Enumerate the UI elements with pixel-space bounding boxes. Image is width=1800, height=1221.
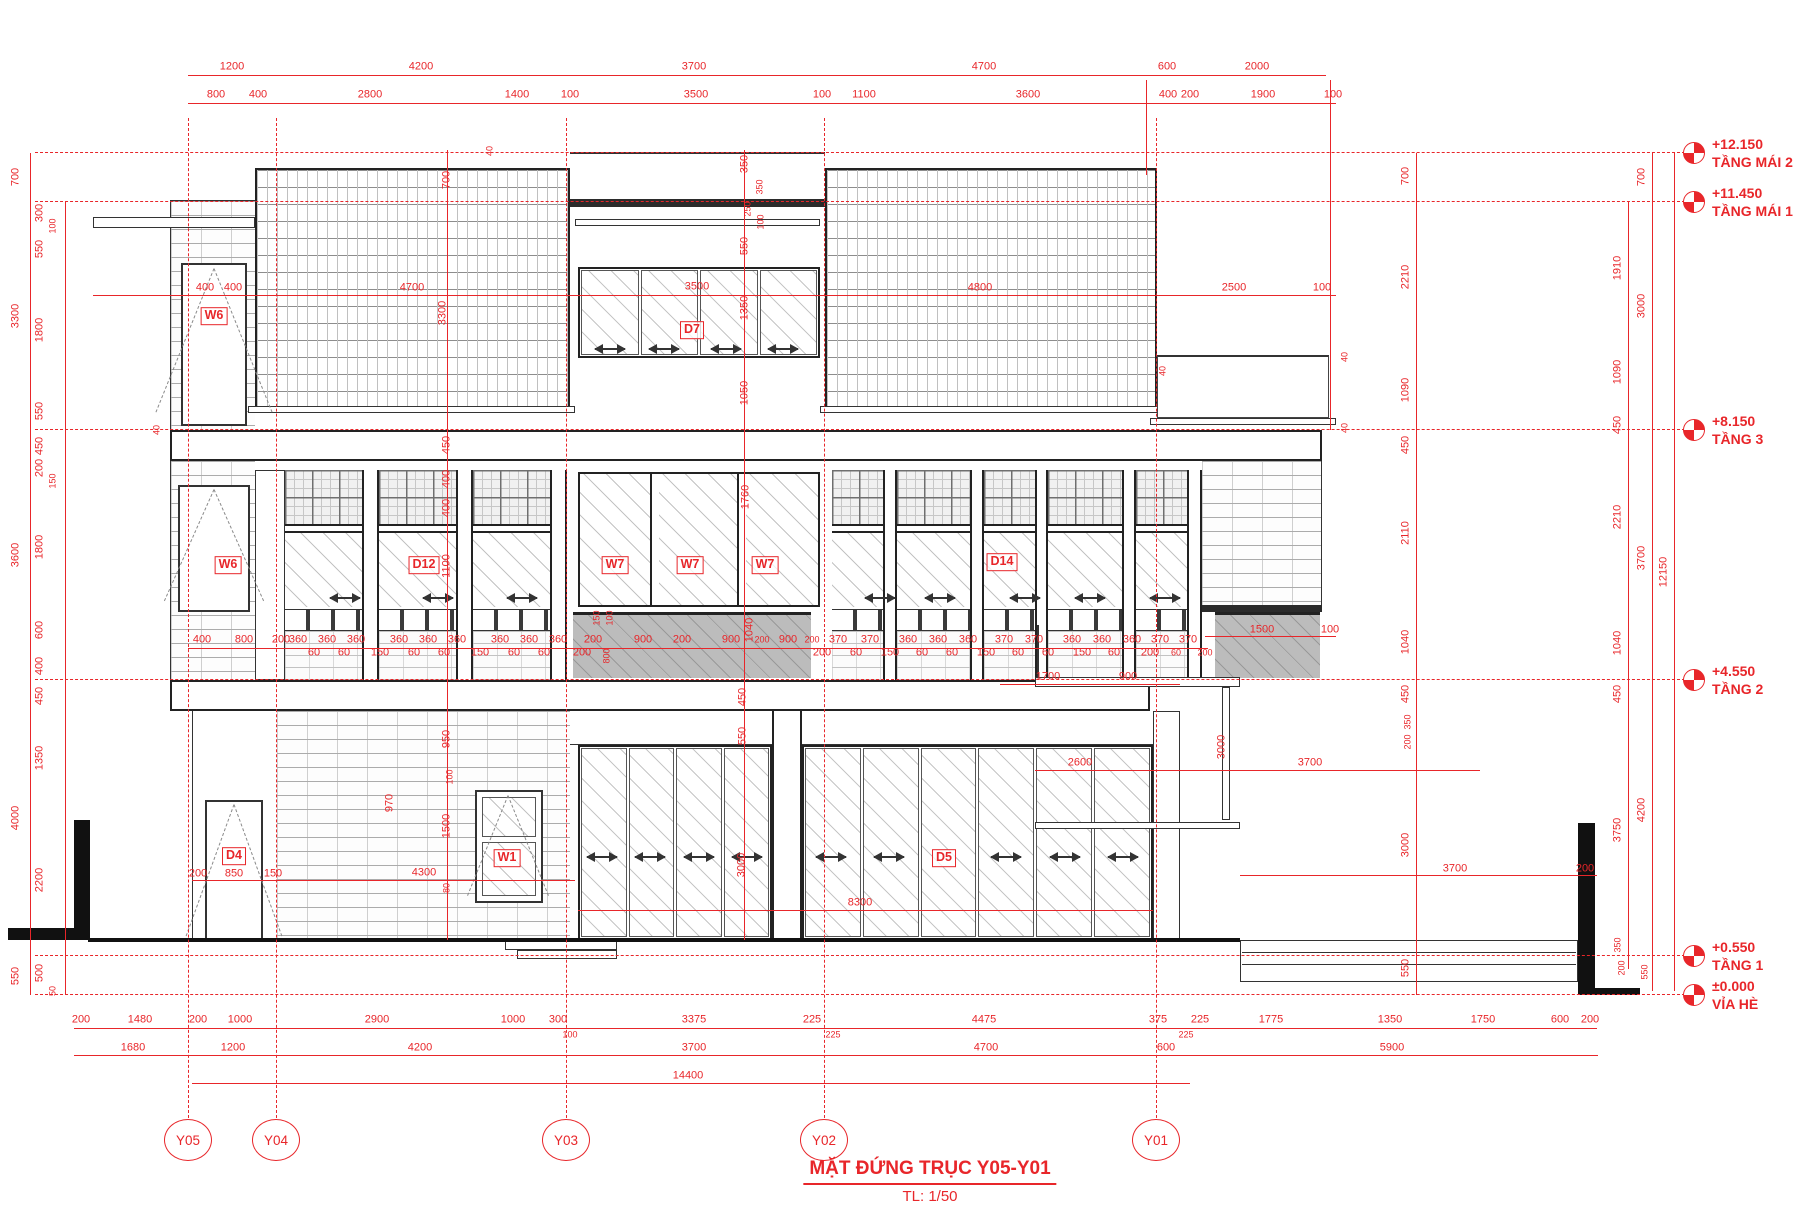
tag-d14: D14 bbox=[987, 553, 1018, 571]
dim-label: 4000 bbox=[11, 806, 22, 830]
dim-label: 1400 bbox=[505, 90, 529, 101]
dim-label: 150 bbox=[1073, 648, 1091, 659]
w7-pane bbox=[580, 474, 650, 605]
dim-line bbox=[192, 880, 575, 881]
axis-bubble-y04: Y04 bbox=[252, 1119, 300, 1161]
dim-label: 360 bbox=[549, 635, 567, 646]
dim-label: 150 bbox=[264, 869, 282, 880]
dim-label: 60 bbox=[338, 648, 350, 659]
dim-label: 150 bbox=[977, 648, 995, 659]
t3-right-brick bbox=[1202, 461, 1322, 612]
dim-label: 60 bbox=[1108, 648, 1120, 659]
slide-arrow-icon bbox=[1075, 597, 1105, 599]
dim-label: 1480 bbox=[128, 1015, 152, 1026]
dim-label: 200 bbox=[1181, 90, 1199, 101]
dim-label: 550 bbox=[1641, 964, 1650, 979]
dim-label: 2200 bbox=[35, 868, 46, 892]
door-pane bbox=[629, 748, 675, 937]
level-elevation: +0.550 bbox=[1712, 939, 1755, 955]
dim-label: 1750 bbox=[1471, 1015, 1495, 1026]
dim-label: 40 bbox=[1341, 423, 1350, 433]
dim-label: 600 bbox=[1158, 62, 1176, 73]
bay-glass bbox=[832, 533, 883, 607]
dim-label: 700 bbox=[1401, 167, 1412, 185]
dim-label: 700 bbox=[11, 168, 22, 186]
level-name: TẦNG 1 bbox=[1712, 957, 1763, 973]
dim-label: 3500 bbox=[684, 90, 708, 101]
dim-label: 550 bbox=[35, 402, 46, 420]
dim-line bbox=[1000, 684, 1180, 685]
dim-label: 3375 bbox=[682, 1015, 706, 1026]
breeze-block-screen bbox=[285, 470, 362, 524]
dim-label: 1000 bbox=[501, 1015, 525, 1026]
dim-label: 360 bbox=[347, 635, 365, 646]
dim-label: 100 bbox=[606, 610, 615, 625]
dim-label: 450 bbox=[738, 688, 749, 706]
level-marker-icon bbox=[1683, 669, 1705, 691]
right-parapet-gray bbox=[1215, 612, 1320, 678]
w7-pane bbox=[659, 474, 737, 605]
fascia-band-t3 bbox=[170, 430, 1322, 461]
dim-label: 50 bbox=[49, 986, 58, 996]
dim-label: 3300 bbox=[438, 301, 449, 325]
axis-line bbox=[276, 118, 277, 1118]
dim-label: 60 bbox=[508, 648, 520, 659]
level-name: TẦNG MÁI 1 bbox=[1712, 203, 1793, 219]
gf-column bbox=[772, 711, 802, 940]
dim-label: 225 bbox=[1178, 1031, 1193, 1040]
dim-label: 360 bbox=[289, 635, 307, 646]
door-pane bbox=[1036, 748, 1092, 937]
tag-w6: W6 bbox=[201, 307, 228, 325]
dim-label: 60 bbox=[946, 648, 958, 659]
level-line bbox=[35, 152, 1685, 153]
dim-label: 4300 bbox=[412, 868, 436, 879]
dim-label: 250 bbox=[744, 201, 753, 216]
dim-label: 400 bbox=[442, 470, 453, 488]
dim-label: 14400 bbox=[673, 1071, 704, 1082]
dim-label: 1100 bbox=[442, 554, 453, 578]
tag-d5: D5 bbox=[932, 849, 956, 867]
slide-arrow-icon bbox=[330, 597, 360, 599]
dim-label: 360 bbox=[520, 635, 538, 646]
dim-label: 550 bbox=[35, 240, 46, 258]
slide-arrow-icon bbox=[711, 348, 741, 350]
dim-label: 3000 bbox=[1217, 735, 1228, 759]
dim-label: 450 bbox=[1401, 436, 1412, 454]
dim-line bbox=[578, 910, 1153, 911]
dim-label: 360 bbox=[448, 635, 466, 646]
dim-label: 2800 bbox=[358, 90, 382, 101]
axis-bubble-y05: Y05 bbox=[164, 1119, 212, 1161]
dim-label: 360 bbox=[1123, 635, 1141, 646]
baluster-rail bbox=[379, 609, 456, 631]
dim-label: 3000 bbox=[1637, 294, 1648, 318]
tag-d12: D12 bbox=[409, 556, 440, 574]
dim-label: 370 bbox=[861, 635, 879, 646]
dim-label: 40 bbox=[1341, 352, 1350, 362]
dim-label: 300 bbox=[35, 204, 46, 222]
axis-bubble-y03: Y03 bbox=[542, 1119, 590, 1161]
dim-label: 225 bbox=[803, 1015, 821, 1026]
dim-label: 60 bbox=[850, 648, 862, 659]
dim-label: 2900 bbox=[365, 1015, 389, 1026]
dim-line bbox=[30, 153, 31, 995]
dim-label: 360 bbox=[318, 635, 336, 646]
dim-label: 150 bbox=[881, 648, 899, 659]
level-line bbox=[35, 955, 1685, 956]
drawing-scale: TL: 1/50 bbox=[902, 1188, 957, 1205]
dim-line bbox=[1205, 636, 1336, 637]
dim-label: 300 bbox=[549, 1015, 567, 1026]
dim-label: 800 bbox=[603, 648, 612, 663]
door-pane bbox=[724, 748, 770, 937]
dim-label: 360 bbox=[959, 635, 977, 646]
right-eave-board bbox=[820, 406, 1161, 413]
door-pane bbox=[581, 748, 627, 937]
breeze-block-screen bbox=[897, 470, 971, 524]
dim-line bbox=[1035, 770, 1480, 771]
dim-label: 450 bbox=[35, 437, 46, 455]
dim-label: 350 bbox=[756, 179, 765, 194]
dim-label: 3300 bbox=[11, 304, 22, 328]
slide-arrow-icon bbox=[1010, 597, 1040, 599]
dim-label: 370 bbox=[995, 635, 1013, 646]
dim-label: 80 bbox=[443, 883, 452, 893]
dim-line bbox=[65, 202, 66, 995]
dim-label: 550 bbox=[11, 967, 22, 985]
dim-label: 1900 bbox=[1251, 90, 1275, 101]
tag-w7: W7 bbox=[677, 556, 704, 574]
breeze-block-screen bbox=[832, 470, 883, 524]
baluster-rail bbox=[897, 609, 971, 631]
dim-label: 1760 bbox=[741, 485, 752, 509]
slide-arrow-icon bbox=[865, 597, 895, 599]
bay-glass bbox=[285, 533, 362, 607]
dim-label: 2500 bbox=[1222, 283, 1246, 294]
dim-label: 200 bbox=[754, 636, 769, 645]
window-w7-group bbox=[578, 472, 820, 607]
dim-label: 100 bbox=[1324, 90, 1342, 101]
drawing-title: MẶT ĐỨNG TRỤC Y05-Y01 bbox=[803, 1158, 1056, 1185]
dim-label: 3700 bbox=[1443, 864, 1467, 875]
dim-label: 3600 bbox=[11, 543, 22, 567]
terrace-slab bbox=[1150, 418, 1336, 425]
dim-label: 150 bbox=[371, 648, 389, 659]
terrace-railing bbox=[1157, 355, 1329, 418]
dim-label: 1040 bbox=[1401, 630, 1412, 654]
door-pane bbox=[1094, 748, 1150, 937]
dim-label: 100 bbox=[1321, 625, 1339, 636]
dim-label: 3700 bbox=[1298, 758, 1322, 769]
dim-line bbox=[1652, 153, 1653, 991]
dim-label: 200 bbox=[189, 1015, 207, 1026]
dim-line bbox=[1330, 80, 1331, 430]
dim-label: 100 bbox=[446, 769, 455, 784]
right-parapet-cap bbox=[1202, 605, 1322, 612]
dim-label: 360 bbox=[929, 635, 947, 646]
dim-label: 800 bbox=[207, 90, 225, 101]
dim-label: 1350 bbox=[740, 296, 751, 320]
dim-label: 100 bbox=[562, 1031, 577, 1040]
dim-label: 350 bbox=[1614, 937, 1623, 952]
dim-label: 400 bbox=[193, 635, 211, 646]
w1-top-pane bbox=[482, 797, 536, 837]
door-pane bbox=[676, 748, 722, 937]
axis-line bbox=[824, 118, 825, 1118]
dim-label: 4200 bbox=[409, 62, 433, 73]
dim-label: 400 bbox=[35, 657, 46, 675]
dim-label: 3750 bbox=[1613, 818, 1624, 842]
level-name: TẦNG MÁI 2 bbox=[1712, 154, 1793, 170]
tag-d4: D4 bbox=[222, 847, 246, 865]
dim-label: 400 bbox=[196, 283, 214, 294]
dim-label: 900 bbox=[634, 635, 652, 646]
dim-label: 200 bbox=[573, 648, 591, 659]
dim-label: 370 bbox=[1025, 635, 1043, 646]
slide-arrow-icon bbox=[1108, 856, 1138, 858]
dim-label: 360 bbox=[1063, 635, 1081, 646]
dim-label: 850 bbox=[225, 869, 243, 880]
slide-arrow-icon bbox=[874, 856, 904, 858]
dim-label: 200 bbox=[673, 635, 691, 646]
dim-label: 100 bbox=[1313, 283, 1331, 294]
dim-label: 2210 bbox=[1401, 265, 1412, 289]
door-pane bbox=[978, 748, 1034, 937]
baluster-rail bbox=[473, 609, 550, 631]
slide-arrow-icon bbox=[684, 856, 714, 858]
dim-label: 60 bbox=[438, 648, 450, 659]
dim-label: 2110 bbox=[1401, 521, 1412, 545]
dim-label: 200 bbox=[1618, 960, 1627, 975]
dim-label: 200 bbox=[584, 635, 602, 646]
slide-arrow-icon bbox=[423, 597, 453, 599]
dim-label: 1775 bbox=[1259, 1015, 1283, 1026]
baluster-rail bbox=[832, 609, 883, 631]
dim-line bbox=[1146, 80, 1147, 175]
dim-label: 1000 bbox=[228, 1015, 252, 1026]
dim-label: 200 bbox=[72, 1015, 90, 1026]
breeze-block-screen bbox=[473, 470, 550, 524]
dim-label: 1700 bbox=[1036, 672, 1060, 683]
tag-d7: D7 bbox=[680, 321, 704, 339]
dim-label: 375 bbox=[1149, 1015, 1167, 1026]
dim-label: 1800 bbox=[35, 318, 46, 342]
dim-label: 370 bbox=[829, 635, 847, 646]
ground-slab-line bbox=[88, 938, 1240, 942]
dim-label: 1500 bbox=[442, 814, 453, 838]
dim-label: 3700 bbox=[682, 1043, 706, 1054]
dim-label: 2000 bbox=[1245, 62, 1269, 73]
level-line bbox=[35, 994, 1685, 995]
dim-line bbox=[192, 1083, 1190, 1084]
dim-label: 1200 bbox=[221, 1043, 245, 1054]
level-marker-icon bbox=[1683, 419, 1705, 441]
dim-label: 450 bbox=[1401, 685, 1412, 703]
baluster-rail bbox=[285, 609, 362, 631]
dim-label: 100 bbox=[561, 90, 579, 101]
dim-label: 400 bbox=[442, 499, 453, 517]
dim-label: 1350 bbox=[35, 746, 46, 770]
terrace-step-line bbox=[1242, 952, 1576, 953]
dim-label: 1100 bbox=[852, 90, 876, 101]
axis-bubble-y02: Y02 bbox=[800, 1119, 848, 1161]
level-elevation: +4.550 bbox=[1712, 663, 1755, 679]
dim-label: 40 bbox=[486, 146, 495, 156]
level-name: TẦNG 2 bbox=[1712, 681, 1763, 697]
tag-w1: W1 bbox=[494, 849, 521, 867]
dim-label: 60 bbox=[916, 648, 928, 659]
dim-label: 60 bbox=[538, 648, 550, 659]
dim-label: 4700 bbox=[974, 1043, 998, 1054]
level-elevation: +11.450 bbox=[1712, 185, 1762, 201]
dim-label: 450 bbox=[442, 436, 453, 454]
dim-label: 1040 bbox=[1613, 631, 1624, 655]
bay-glass bbox=[1048, 533, 1122, 607]
dim-label: 40 bbox=[1159, 366, 1168, 376]
dim-label: 100 bbox=[49, 218, 58, 233]
dim-label: 150 bbox=[49, 473, 58, 488]
dim-label: 4200 bbox=[1637, 798, 1648, 822]
dim-label: 600 bbox=[35, 621, 46, 639]
dim-label: 200 bbox=[1141, 648, 1159, 659]
dim-label: 360 bbox=[419, 635, 437, 646]
axis-bubble-y01: Y01 bbox=[1132, 1119, 1180, 1161]
dim-label: 370 bbox=[1179, 635, 1197, 646]
dim-line bbox=[188, 103, 1336, 104]
d7-pane bbox=[581, 270, 639, 355]
level-marker-icon bbox=[1683, 945, 1705, 967]
dim-label: 200 bbox=[1581, 1015, 1599, 1026]
dim-label: 200 bbox=[272, 635, 290, 646]
door-pane bbox=[863, 748, 919, 937]
dim-label: 4200 bbox=[408, 1043, 432, 1054]
dim-label: 700 bbox=[1637, 168, 1648, 186]
dim-line bbox=[1628, 202, 1629, 969]
dim-label: 900 bbox=[722, 635, 740, 646]
dim-label: 970 bbox=[385, 794, 396, 812]
dim-label: 225 bbox=[825, 1031, 840, 1040]
w7-pane bbox=[746, 474, 818, 605]
dim-line bbox=[74, 1055, 1598, 1056]
level-name: TẦNG 3 bbox=[1712, 431, 1763, 447]
tag-w7: W7 bbox=[602, 556, 629, 574]
dim-label: 360 bbox=[491, 635, 509, 646]
dim-label: 450 bbox=[35, 687, 46, 705]
left-canopy-slab bbox=[93, 217, 255, 228]
dim-label: 200 bbox=[804, 636, 819, 645]
dim-label: 60 bbox=[1171, 649, 1181, 658]
dim-label: 3700 bbox=[1637, 546, 1648, 570]
dim-label: 370 bbox=[1151, 635, 1169, 646]
dim-label: 800 bbox=[235, 635, 253, 646]
dim-label: 950 bbox=[442, 730, 453, 748]
dim-label: 5900 bbox=[1380, 1043, 1404, 1054]
dim-label: 60 bbox=[408, 648, 420, 659]
d7-pane bbox=[760, 270, 818, 355]
dim-label: 1800 bbox=[35, 535, 46, 559]
right-boundary-wall bbox=[1578, 823, 1595, 988]
dim-line bbox=[188, 75, 1326, 76]
dim-label: 3600 bbox=[1016, 90, 1040, 101]
slide-arrow-icon bbox=[1150, 597, 1180, 599]
dim-label: 400 bbox=[1159, 90, 1177, 101]
dim-label: 4700 bbox=[400, 283, 424, 294]
breeze-block-screen bbox=[1136, 470, 1187, 524]
dim-label: 550 bbox=[740, 237, 751, 255]
gf-transom bbox=[570, 711, 1153, 745]
dim-label: 3000 bbox=[1401, 833, 1412, 857]
dim-label: 450 bbox=[1613, 685, 1624, 703]
dim-line bbox=[93, 295, 1336, 296]
axis-line bbox=[566, 118, 567, 1118]
slide-arrow-icon bbox=[595, 348, 625, 350]
slide-arrow-icon bbox=[1050, 856, 1080, 858]
slide-arrow-icon bbox=[649, 348, 679, 350]
dim-label: 2600 bbox=[1068, 758, 1092, 769]
dim-label: 1680 bbox=[121, 1043, 145, 1054]
slide-arrow-icon bbox=[635, 856, 665, 858]
dim-label: 200 bbox=[1197, 649, 1212, 658]
dim-label: 4800 bbox=[968, 283, 992, 294]
dim-label: 3700 bbox=[682, 62, 706, 73]
dim-label: 400 bbox=[249, 90, 267, 101]
dim-label: 360 bbox=[899, 635, 917, 646]
dim-label: 1050 bbox=[740, 381, 751, 405]
dim-label: 350 bbox=[1404, 714, 1413, 729]
dim-label: 100 bbox=[813, 90, 831, 101]
level-line bbox=[35, 201, 1685, 202]
left-eave-board bbox=[248, 406, 575, 413]
axis-line bbox=[1156, 118, 1157, 1118]
dim-label: 1350 bbox=[1378, 1015, 1402, 1026]
dim-label: 1090 bbox=[1401, 378, 1412, 402]
dim-label: 100 bbox=[757, 214, 766, 229]
dim-label: 900 bbox=[779, 635, 797, 646]
level-line bbox=[35, 679, 1685, 680]
dim-label: 200 bbox=[1404, 734, 1413, 749]
dim-label: 200 bbox=[1576, 864, 1594, 875]
dim-label: 450 bbox=[1613, 416, 1624, 434]
dim-label: 40 bbox=[153, 425, 162, 435]
dim-label: 600 bbox=[1551, 1015, 1569, 1026]
baluster-rail bbox=[1136, 609, 1187, 631]
dim-label: 200 bbox=[35, 459, 46, 477]
center-roof-band-2 bbox=[575, 219, 820, 226]
dim-label: 1910 bbox=[1613, 256, 1624, 280]
dim-label: 1500 bbox=[1250, 625, 1274, 636]
baluster-rail bbox=[1048, 609, 1122, 631]
dim-label: 60 bbox=[1042, 648, 1054, 659]
dim-label: 700 bbox=[442, 171, 453, 189]
dim-label: 1090 bbox=[1613, 360, 1624, 384]
dim-label: 200 bbox=[189, 869, 207, 880]
baluster-rail bbox=[984, 609, 1035, 631]
bay-glass bbox=[897, 533, 971, 607]
dim-label: 400 bbox=[224, 283, 242, 294]
level-elevation: +8.150 bbox=[1712, 413, 1755, 429]
dim-label: 2210 bbox=[1613, 505, 1624, 529]
dim-label: 8300 bbox=[848, 898, 872, 909]
dim-label: 350 bbox=[740, 155, 751, 173]
dim-label: 4475 bbox=[972, 1015, 996, 1026]
dim-label: 60 bbox=[308, 648, 320, 659]
dim-label: 3500 bbox=[685, 282, 709, 293]
slide-arrow-icon bbox=[991, 856, 1021, 858]
dim-label: 225 bbox=[1191, 1015, 1209, 1026]
dim-label: 900 bbox=[1119, 672, 1137, 683]
level-marker-icon bbox=[1683, 984, 1705, 1006]
